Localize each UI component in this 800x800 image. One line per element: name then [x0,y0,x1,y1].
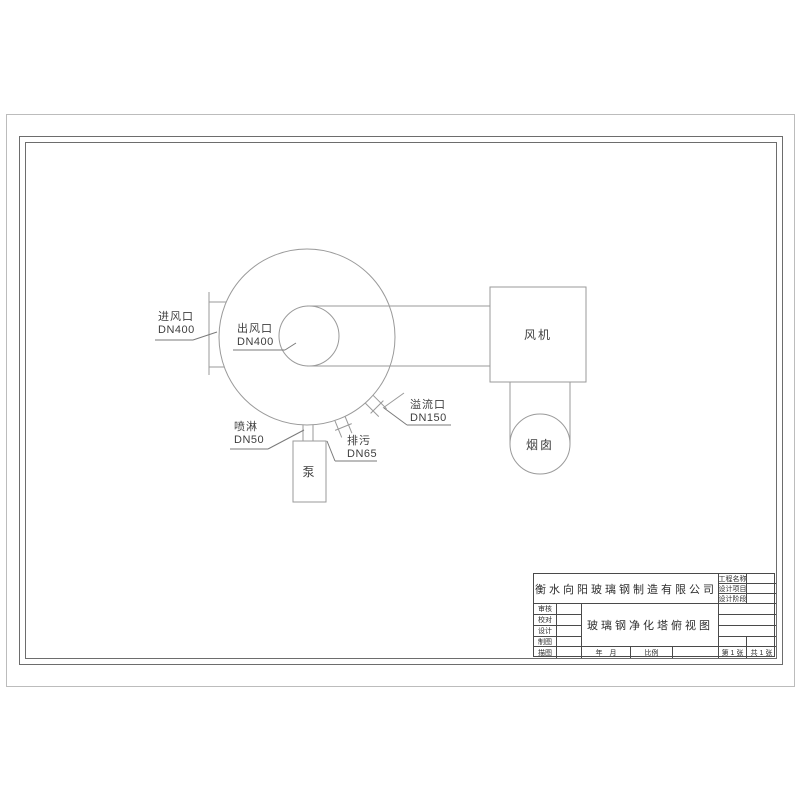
design-project-value [747,584,776,594]
outlet-circle [279,306,339,366]
drain-dn-text: DN65 [347,448,377,460]
overflow-pipe-ext [383,393,404,408]
drawing-title-cell: 玻璃钢净化塔俯视图 [582,604,719,647]
overflow-label-text: 溢流口 [410,399,446,411]
scale-cell: 比例 [631,647,673,658]
project-name-value [747,574,776,584]
drafting-label: 制图 [534,637,557,647]
spray-label: 喷淋DN50 [234,421,264,447]
proofread-value [557,615,582,626]
outlet-label-text: 出风口 [237,323,273,335]
inlet-dn-text: DN400 [158,324,195,336]
company-name-cell: 衡水向阳玻璃钢制造有限公司 [534,574,719,604]
cad-drawing [0,0,800,800]
overflow-label: 溢流口DN150 [410,399,447,425]
empty-cell [719,626,776,637]
chimney-label: 烟囱 [510,414,570,474]
overflow-dn-text: DN150 [410,412,447,424]
pump-label-text: 泵 [302,463,316,480]
empty-cell [747,637,776,647]
drain-leader [327,441,335,461]
tracing-value [557,647,582,658]
empty-cell [719,615,776,626]
outlet-label: 出风口DN400 [237,323,274,349]
overflow-stub-flange [371,401,384,414]
drafting-value [557,637,582,647]
date-cell: 年 月 [582,647,631,658]
outlet-dn-text: DN400 [237,336,274,348]
spray-dn-text: DN50 [234,434,264,446]
inlet-label: 进风口DN400 [158,311,195,337]
chimney-label-text: 烟囱 [526,436,554,453]
overflow-stub-line1 [365,403,379,417]
fan-label: 风机 [490,287,586,382]
empty-cell [673,647,719,658]
sheet-no-cell: 第 1 张 [719,647,747,658]
title-block: 衡水向阳玻璃钢制造有限公司 工程名称 设计项目 设计阶段 审核 校对 设计 制图… [533,573,775,657]
inlet-label-text: 进风口 [158,311,194,323]
pump-label: 泵 [293,441,326,502]
drain-label: 排污DN65 [347,435,377,461]
drawing-page: 进风口DN400 出风口DN400 喷淋DN50 排污DN65 溢流口DN150… [0,0,800,800]
design-value [557,626,582,637]
project-name-label: 工程名称 [719,574,747,584]
overflow-leader [384,408,407,425]
drain-label-text: 排污 [347,435,371,447]
sheet-total-cell: 共 1 张 [747,647,776,658]
empty-cell [719,604,776,615]
empty-cell [719,637,747,647]
proofread-label: 校对 [534,615,557,626]
design-stage-label: 设计阶段 [719,594,747,604]
design-label: 设计 [534,626,557,637]
inlet-leader [193,332,217,340]
review-value [557,604,582,615]
fan-label-text: 风机 [524,326,552,343]
review-label: 审核 [534,604,557,615]
design-stage-value [747,594,776,604]
outlet-leader [285,343,296,350]
spray-label-text: 喷淋 [234,421,258,433]
design-project-label: 设计项目 [719,584,747,594]
tracing-label: 描图 [534,647,557,658]
